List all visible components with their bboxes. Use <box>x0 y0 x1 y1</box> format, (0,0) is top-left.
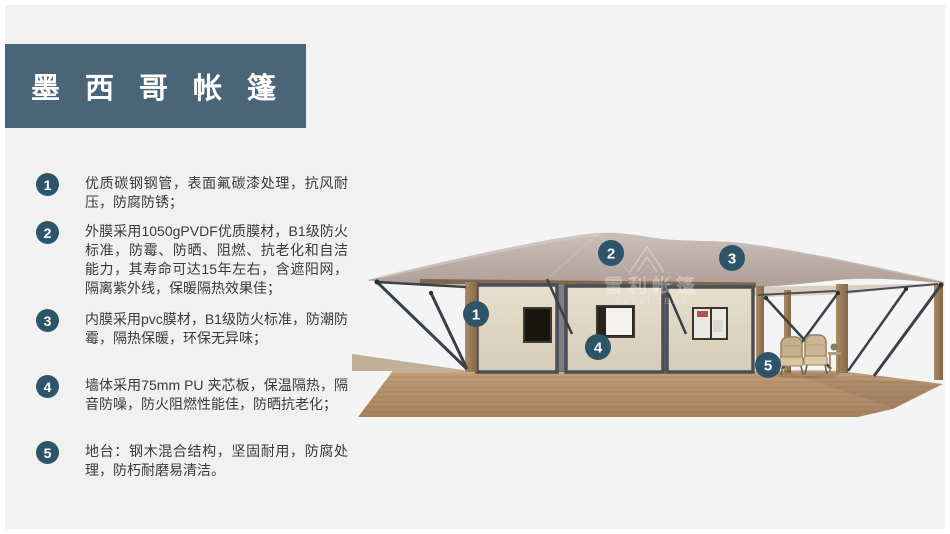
marker-number: 1 <box>472 307 480 324</box>
slide: 墨西哥帐篷 1 优质碳钢钢管，表面氟碳漆处理，抗风耐压，防腐防锈； 2 外膜采用… <box>0 0 950 534</box>
side-table <box>828 352 841 355</box>
corner-post-left <box>465 282 477 372</box>
feature-text: 地台：钢木混合结构，坚固耐用，防腐处理，防朽耐磨易清洁。 <box>85 442 348 480</box>
title-banner: 墨西哥帐篷 <box>4 44 306 128</box>
feature-text: 内膜采用pvc膜材，B1级防火标准，防潮防霉，隔热保暖，环保无异味； <box>85 310 348 348</box>
plant <box>831 344 838 351</box>
tent-illustration: 雪利帐篷 XUELI TENT 1 2 3 4 5 <box>352 215 950 534</box>
feature-text: 外膜采用1050gPVDF优质膜材，B1级防火标准，防霉、防晒、阻燃、抗老化和自… <box>85 222 348 298</box>
feature-text: 优质碳钢钢管，表面氟碳漆处理，抗风耐压，防腐防锈； <box>85 174 348 212</box>
feature-item-4: 4 墙体采用75mm PU 夹芯板，保温隔热，隔音防噪，防火阻燃性能佳，防晒抗老… <box>36 376 348 414</box>
window-red-sign <box>697 311 708 317</box>
callout-marker-2: 2 <box>598 240 624 266</box>
feature-number-badge: 3 <box>36 309 59 332</box>
window-interior-item <box>713 320 723 332</box>
marker-number: 5 <box>764 358 772 375</box>
chair-seat <box>804 356 827 365</box>
callout-marker-3: 3 <box>719 245 745 271</box>
watermark-en-text: XUELI TENT <box>615 296 689 306</box>
feature-item-1: 1 优质碳钢钢管，表面氟碳漆处理，抗风耐压，防腐防锈； <box>36 174 348 212</box>
window-left <box>524 308 551 342</box>
feature-text: 墙体采用75mm PU 夹芯板，保温隔热，隔音防噪，防火阻燃性能佳，防晒抗老化； <box>85 376 348 414</box>
door-panel <box>606 308 632 335</box>
page-title: 墨西哥帐篷 <box>4 65 301 107</box>
callout-marker-4: 4 <box>585 334 611 360</box>
marker-number: 2 <box>607 246 615 263</box>
porch-post-3 <box>836 284 848 373</box>
feature-number-badge: 4 <box>36 375 59 398</box>
callout-marker-1: 1 <box>463 301 489 327</box>
feature-number-badge: 2 <box>36 221 59 244</box>
marker-number: 3 <box>728 251 736 268</box>
watermark-cn-text: 雪利帐篷 <box>604 274 700 297</box>
callout-marker-5: 5 <box>755 352 781 378</box>
feature-number-badge: 5 <box>36 441 59 464</box>
marker-number: 4 <box>594 340 603 357</box>
feature-item-5: 5 地台：钢木混合结构，坚固耐用，防腐处理，防朽耐磨易清洁。 <box>36 442 348 480</box>
porch-post-corner <box>934 284 943 380</box>
feature-number-badge: 1 <box>36 173 59 196</box>
feature-item-2: 2 外膜采用1050gPVDF优质膜材，B1级防火标准，防霉、防晒、阻燃、抗老化… <box>36 222 348 298</box>
chair-seat <box>780 357 803 366</box>
feature-item-3: 3 内膜采用pvc膜材，B1级防火标准，防潮防霉，隔热保暖，环保无异味； <box>36 310 348 348</box>
